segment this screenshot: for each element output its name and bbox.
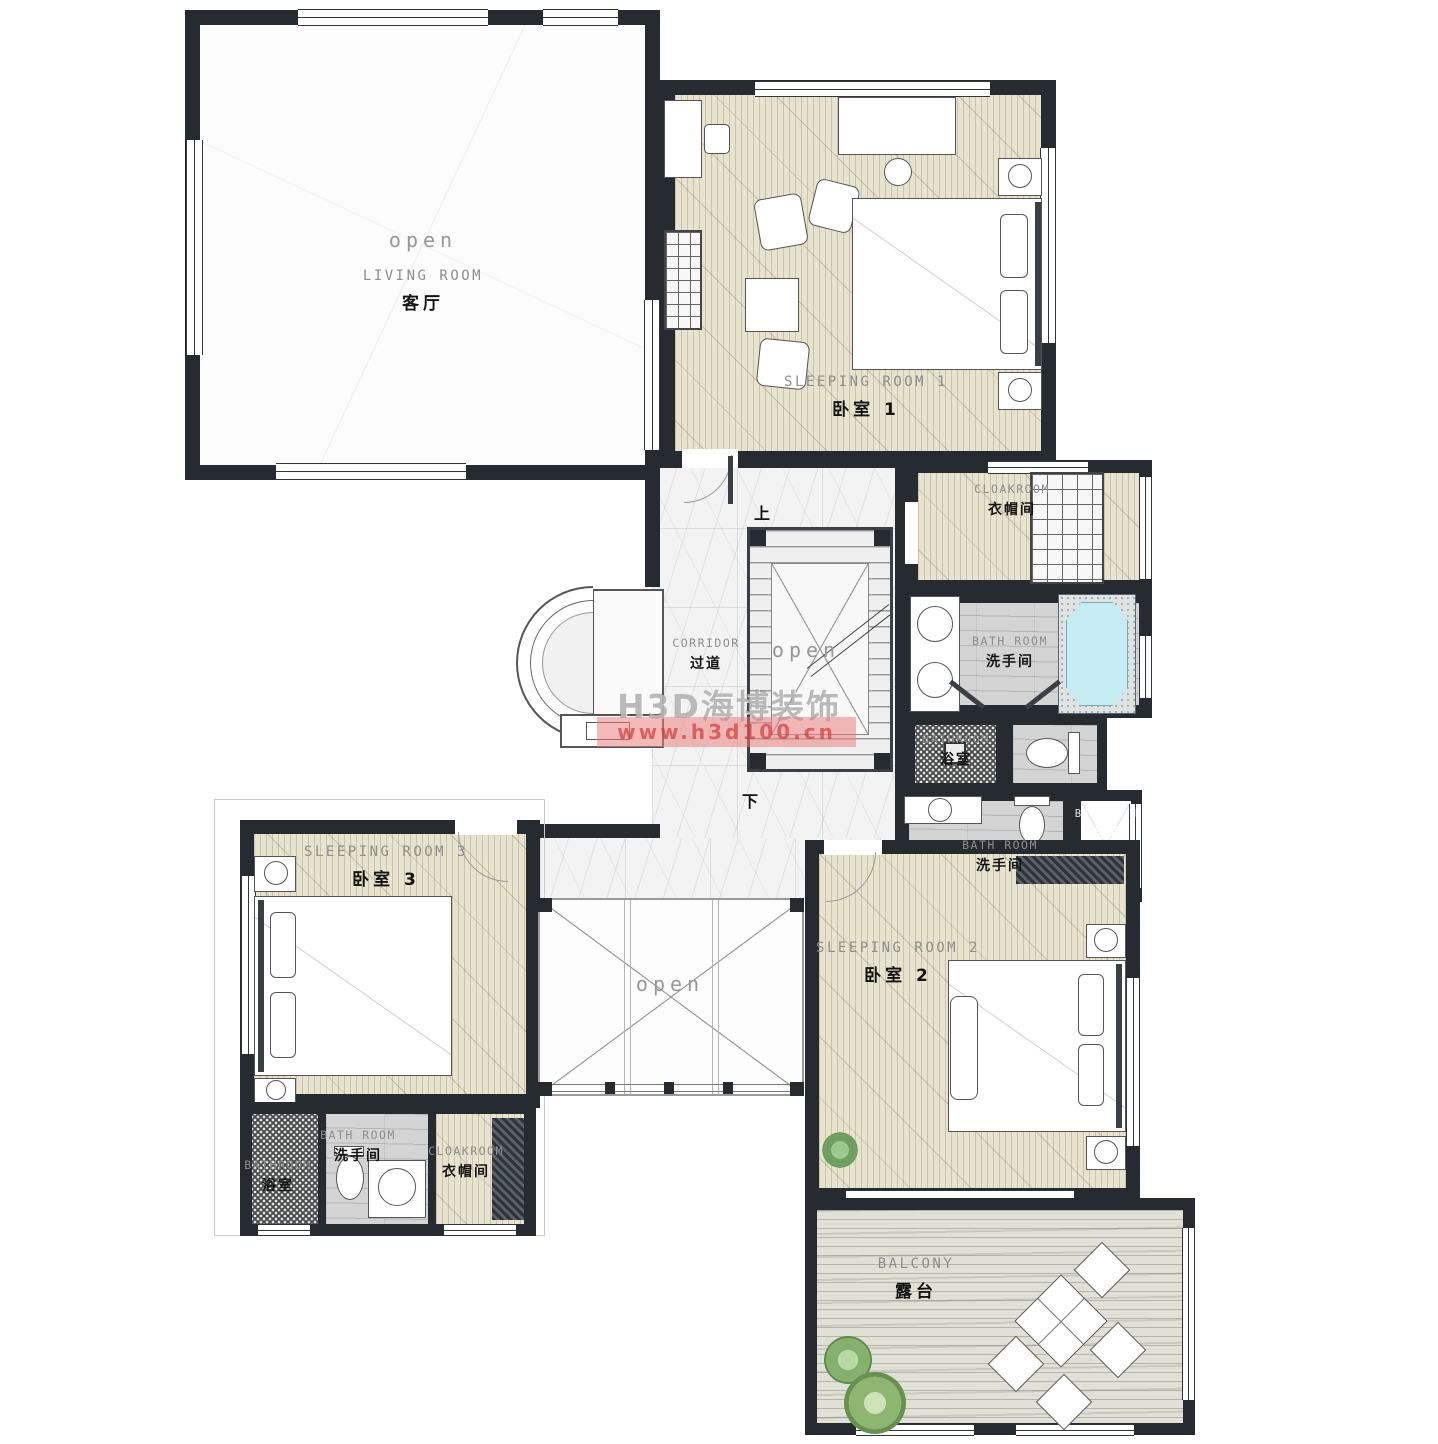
window [258,1224,310,1236]
stair-post [874,753,890,769]
shower-drain [944,742,966,764]
sink [378,1168,416,1206]
window [1040,148,1056,343]
stool [884,158,912,186]
headboard [1116,964,1122,1128]
pillow [1078,1044,1104,1106]
pillow [1000,290,1028,354]
void-post [605,1082,615,1094]
lamp [1008,164,1032,188]
wall [428,1108,436,1230]
stairs-up-label: 上 [754,500,770,524]
watermark-band: www.h3d100.cn [597,717,856,747]
bench [950,996,978,1100]
window [1139,636,1152,698]
armchair [753,192,809,252]
window [298,9,488,26]
plant [822,1132,858,1168]
toilet-bowl [1019,806,1045,844]
void-post [538,898,552,912]
headboard [1035,202,1041,366]
void-post [723,1082,733,1094]
floor-plan: H3D海博装饰 www.h3d100.cn open LIVING ROOM 客… [0,0,1438,1444]
window [1126,978,1140,1146]
pillow [270,912,296,978]
wardrobe [664,230,702,330]
plant [844,1372,906,1434]
dresser [838,97,956,155]
toilet-tank [334,1146,364,1156]
void-mullion [712,900,713,1094]
stair-post [750,753,766,769]
wardrobe [1030,472,1104,584]
wardrobe [492,1118,524,1220]
pillow [270,992,296,1058]
window [755,81,990,97]
tv-cabinet [1016,856,1124,884]
toilet-bowl [336,1156,364,1200]
sink [928,798,952,822]
sink [917,606,953,642]
window [543,9,618,26]
void-post [790,1082,804,1096]
stair-post [874,530,890,546]
toilet-bowl [1026,738,1068,768]
pillow [1000,214,1028,278]
desk [664,100,702,178]
stairs-down-label: 下 [742,788,758,812]
void-post [538,1082,552,1096]
door-opening [905,502,918,564]
wall [318,1108,326,1230]
pillow [1078,974,1104,1036]
window [276,463,466,480]
lamp [266,1080,286,1100]
headboard [258,900,264,1072]
sink [917,662,953,698]
toilet-tank [1014,796,1050,806]
desk-chair [704,124,730,154]
toilet-tank [1068,732,1080,774]
void-mullion [630,900,631,1094]
void-post [790,898,804,912]
window [444,1224,516,1236]
void-mullion [624,900,625,1094]
lamp [1094,928,1118,952]
window [1182,1228,1195,1400]
window [1016,1424,1134,1436]
bathtub [1066,602,1128,706]
window [186,140,203,355]
room-cloakroom-master [905,460,1152,593]
watermark-url: www.h3d100.cn [617,720,836,744]
lamp [1094,1140,1118,1164]
window [1139,477,1152,579]
void-mullion [718,900,719,1094]
void-post [664,1082,674,1094]
wall [645,455,660,587]
window [644,300,660,450]
door-leaf [728,456,733,504]
side-table [745,278,799,332]
open-void [538,898,804,1096]
wall [527,824,660,838]
room-living-room [185,10,660,480]
lamp [1008,378,1032,402]
room-bathroom-3-shower [252,1114,318,1224]
lamp [264,861,288,885]
stair-post [750,530,766,546]
armchair [756,338,811,391]
